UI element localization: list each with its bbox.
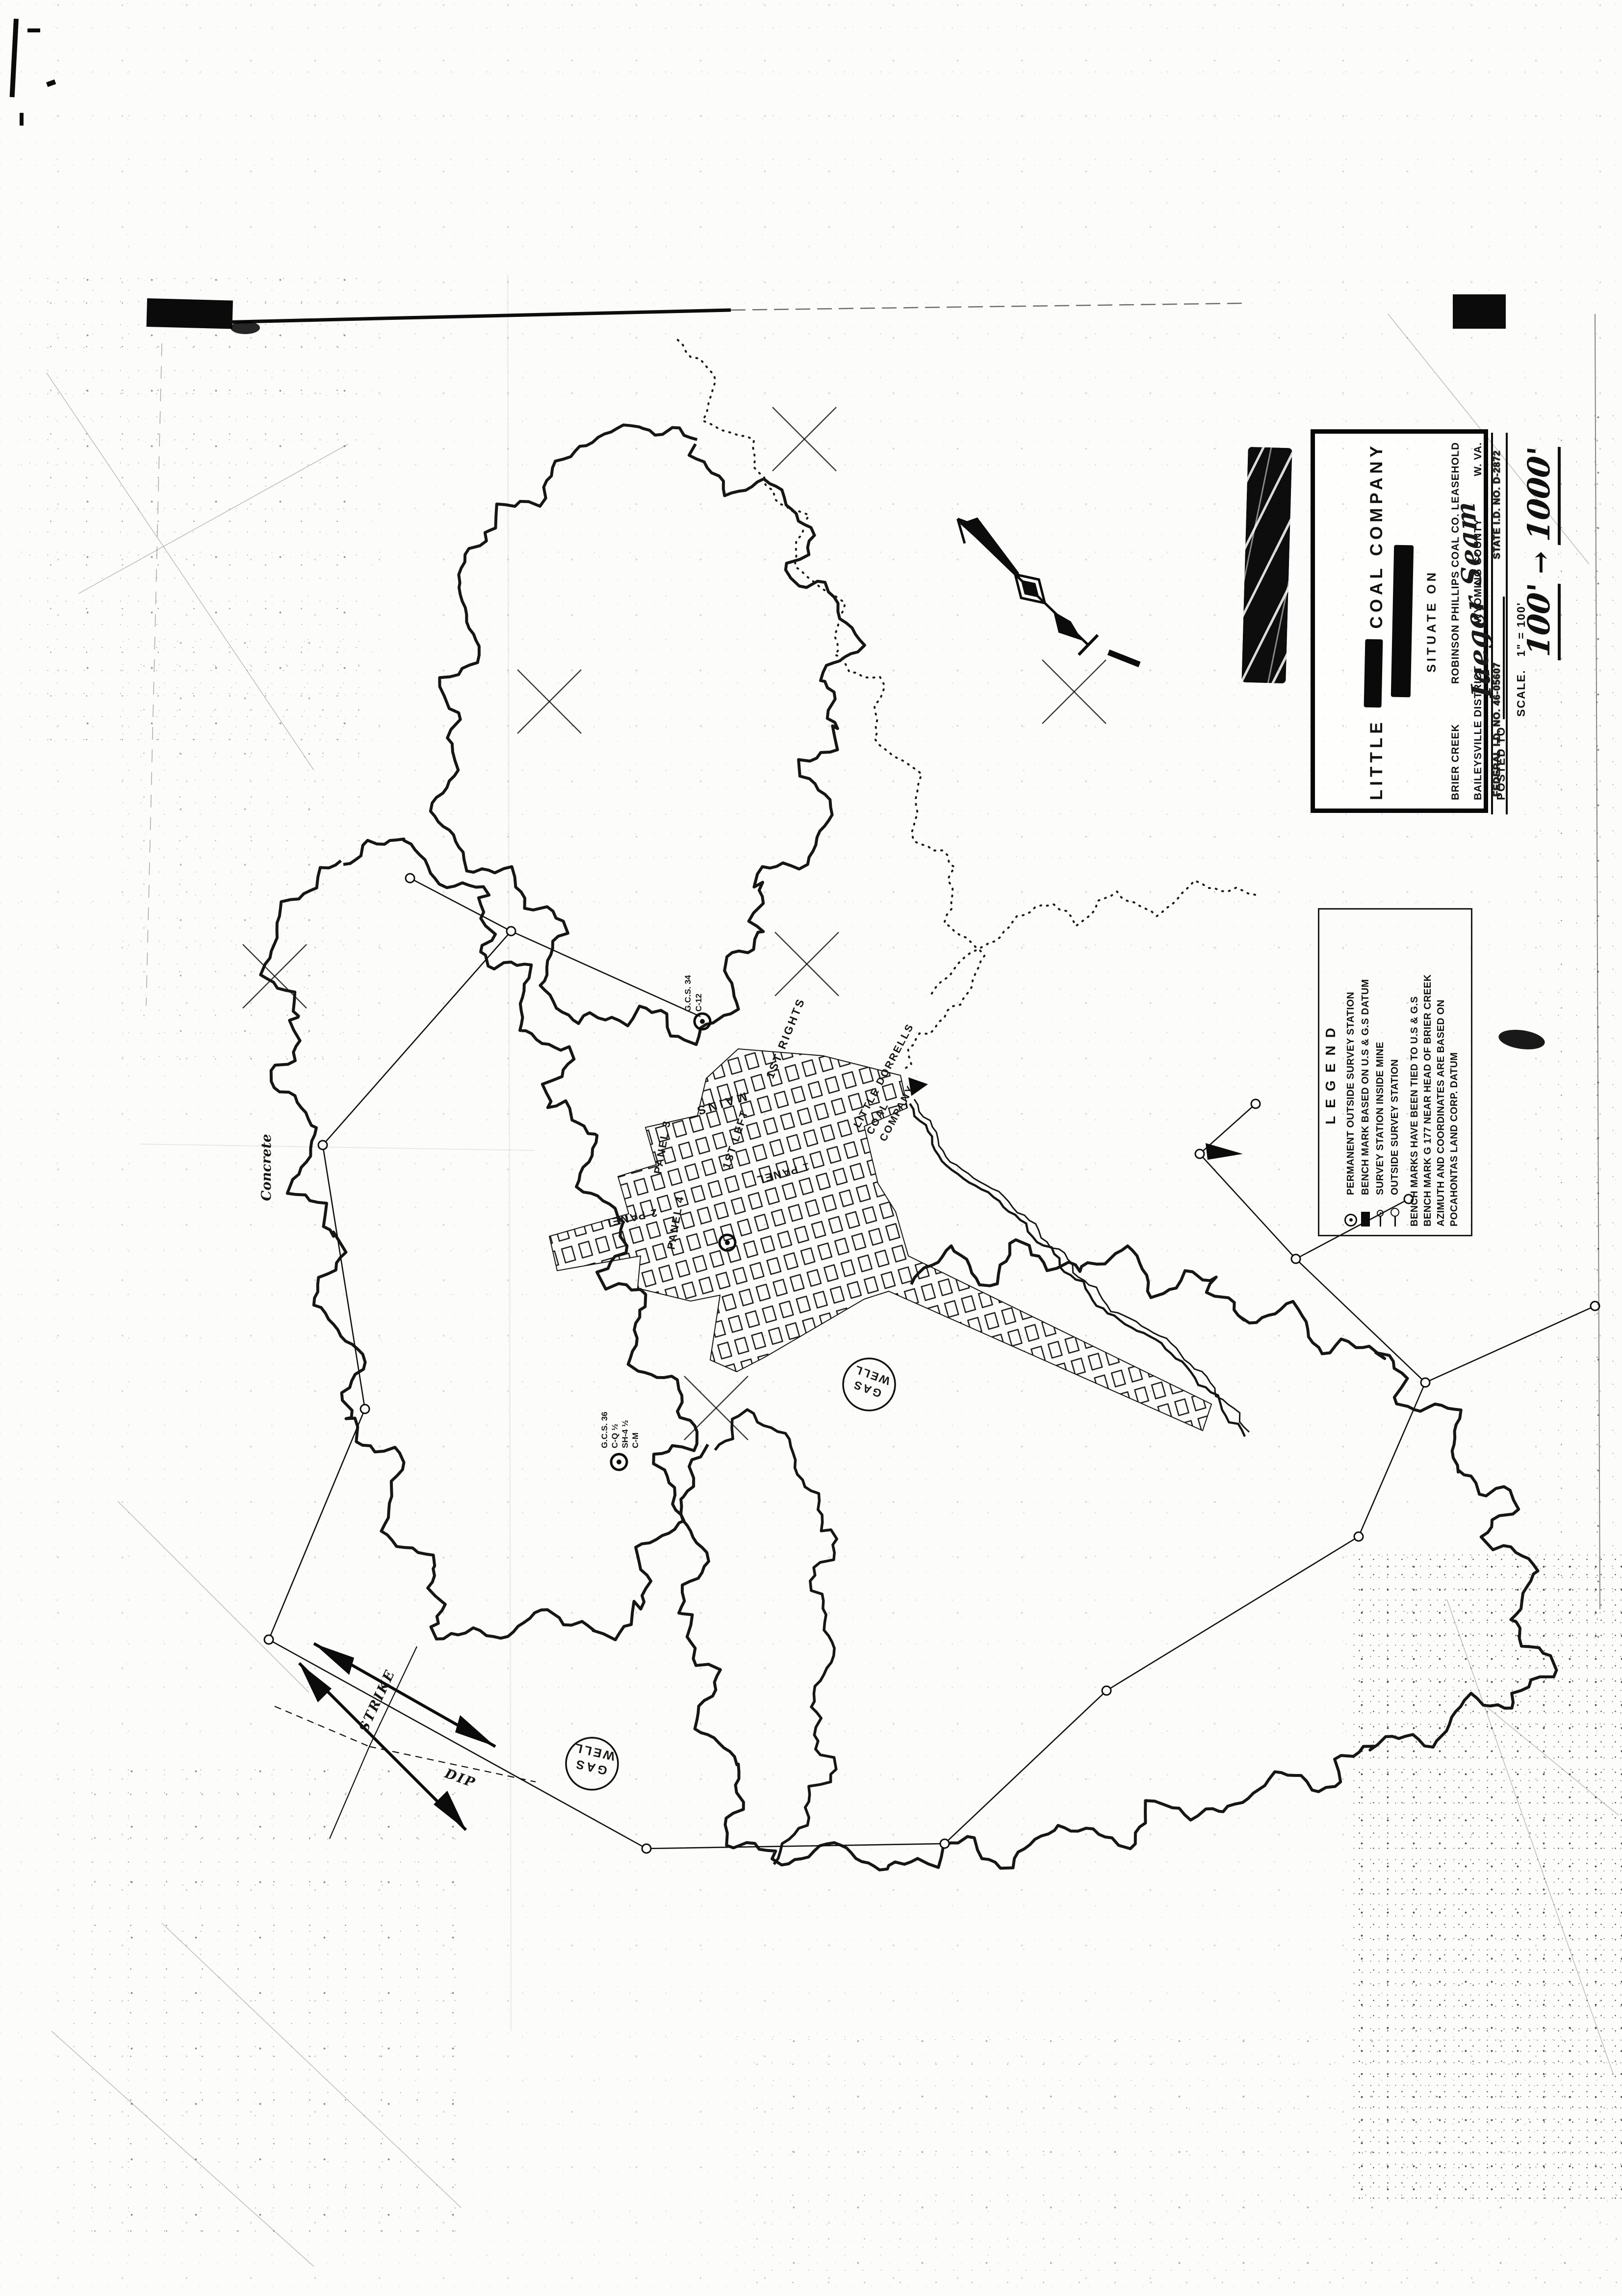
scan-noise-bottom-left xyxy=(74,1766,466,2232)
ink-smudge xyxy=(231,321,260,334)
scan-noise-left xyxy=(123,638,368,1079)
scanned-mine-map-sheet: GAS WELL GAS WELL MAINS 1ST RIGHTS 1ST L… xyxy=(0,0,1622,2296)
scan-noise-right-edge xyxy=(1540,412,1622,1639)
scan-noise-bottom xyxy=(736,2036,1619,2291)
